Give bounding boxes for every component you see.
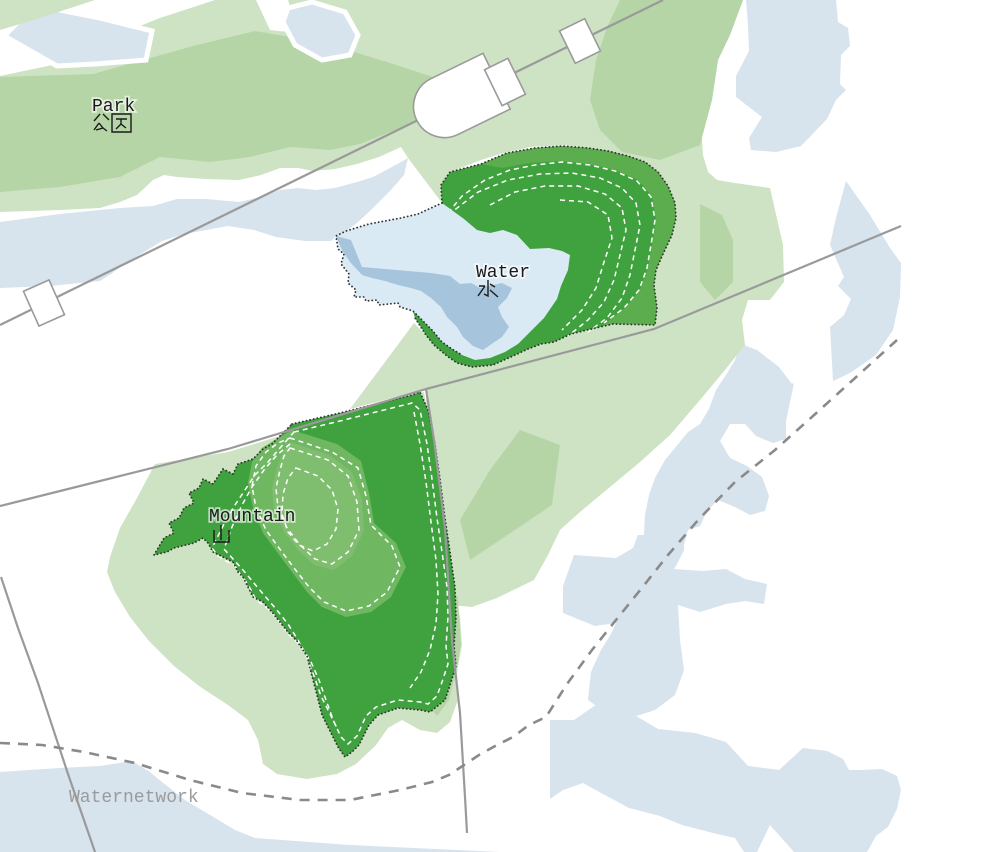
svg-text:Mountain: Mountain: [209, 507, 295, 527]
svg-text:Water: Water: [476, 263, 530, 283]
svg-text:Waternetwork: Waternetwork: [69, 788, 199, 808]
